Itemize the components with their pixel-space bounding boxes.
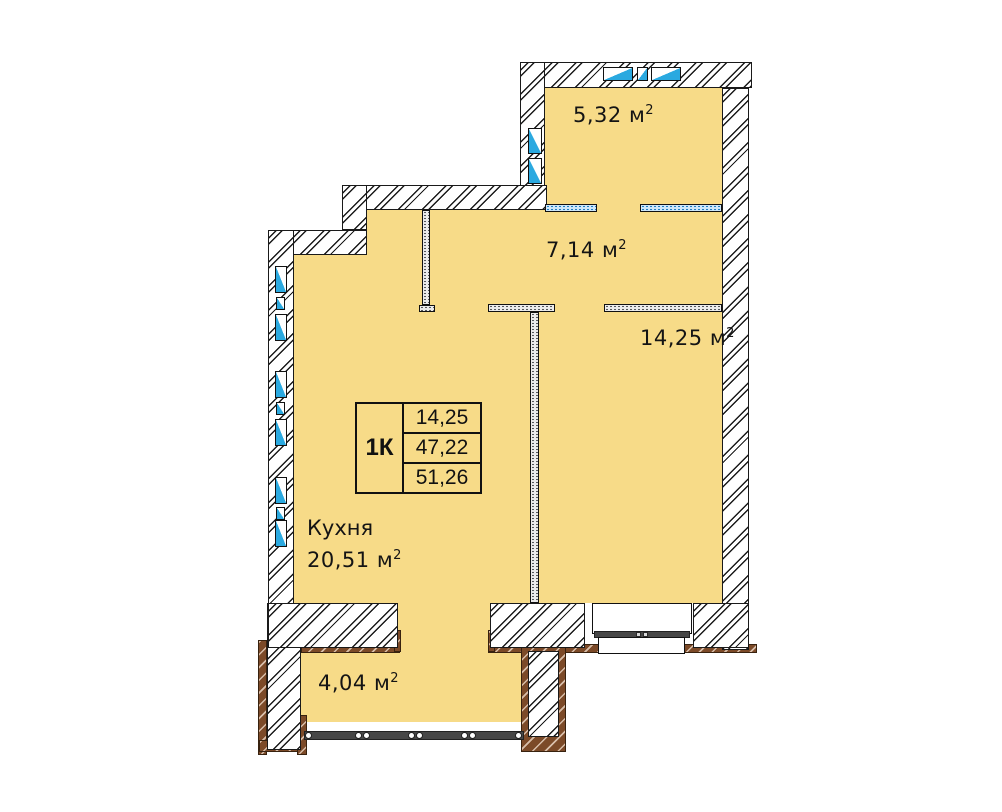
area-value: 4,04 (318, 671, 367, 695)
bathroom-area-label: 5,32 м2 (573, 103, 654, 127)
kitchen-name-label: Кухня (307, 514, 402, 542)
area-exponent: 2 (393, 548, 402, 563)
vent-block-icon (637, 67, 648, 81)
wall-top (520, 62, 752, 88)
apartment-type-cell: 1К (357, 404, 404, 492)
apartment-info-table: 1К 14,25 47,22 51,26 (355, 402, 482, 494)
vent-block-icon (276, 297, 285, 310)
bathroom-partition-left (545, 204, 597, 212)
vent-block-icon (275, 314, 287, 341)
area-value: 5,32 (573, 103, 622, 127)
french-window-inner-sill (598, 637, 685, 654)
balcony-glazing-dot (515, 732, 522, 739)
vent-block-icon (651, 67, 681, 81)
hallway-area-label: 7,14 м2 (546, 238, 627, 262)
area-exponent: 2 (390, 671, 399, 686)
french-window-outer-sill (592, 603, 692, 634)
balcony-glazing-dot (408, 732, 415, 739)
area-unit: м (374, 671, 390, 695)
wall-bottom-kitchen (268, 603, 398, 648)
living-kitchen-partition (530, 312, 539, 603)
area-exponent: 2 (618, 238, 627, 253)
balcony-glazing-dot (305, 732, 312, 739)
area-exponent: 2 (645, 103, 654, 118)
closet-partition (422, 210, 430, 305)
area-value: 7,14 (546, 238, 595, 262)
wall-bottom-middle (490, 603, 585, 648)
balcony-glazing-dot (469, 732, 476, 739)
wall-bottom-right (693, 603, 749, 648)
area-unit: м (629, 103, 645, 127)
usable-area-cell: 47,22 (404, 434, 480, 464)
area-unit: м (710, 326, 726, 350)
kitchen-area-label: 20,51 м2 (307, 542, 402, 574)
vent-block-icon (275, 371, 287, 398)
balcony-area-label: 4,04 м2 (318, 671, 399, 695)
wall-step-vertical (342, 185, 367, 230)
vent-block-icon (603, 67, 633, 81)
hall-partition-left (488, 304, 555, 312)
vent-block-icon (275, 520, 287, 547)
vent-block-icon (528, 128, 542, 154)
balcony-right-pier (528, 651, 559, 737)
balcony-doorway-floor (398, 603, 490, 650)
apartment-areas-column: 14,25 47,22 51,26 (404, 404, 480, 492)
kitchen-label-group: Кухня 20,51 м2 (307, 514, 402, 574)
balcony-glazing-dot (461, 732, 468, 739)
balcony-glazing-dot (355, 732, 362, 739)
wall-right (722, 88, 749, 650)
hall-partition-right (604, 304, 722, 312)
floor-plan: 5,32 м2 7,14 м2 14,25 м2 Кухня 20,51 м2 … (0, 0, 1002, 812)
area-value: 14,25 (640, 326, 703, 350)
bathroom-partition-right (640, 204, 722, 212)
closet-partition-foot (419, 305, 435, 312)
vent-block-icon (528, 158, 542, 184)
wall-kitchen-top (342, 185, 547, 210)
balcony-glazing-dot (416, 732, 423, 739)
living-area-label: 14,25 м2 (640, 326, 735, 350)
balcony-glazing-dot (363, 732, 370, 739)
vent-block-icon (275, 419, 287, 446)
vent-block-icon (276, 402, 285, 415)
total-area-cell: 51,26 (404, 464, 480, 492)
area-exponent: 2 (726, 326, 735, 341)
area-unit: м (377, 548, 393, 572)
area-value: 20,51 (307, 548, 370, 572)
vent-block-icon (276, 507, 285, 520)
vent-block-icon (275, 477, 287, 504)
living-area-cell: 14,25 (404, 404, 480, 434)
vent-block-icon (275, 266, 287, 293)
balcony-left-liner (258, 640, 267, 755)
area-unit: м (602, 238, 618, 262)
